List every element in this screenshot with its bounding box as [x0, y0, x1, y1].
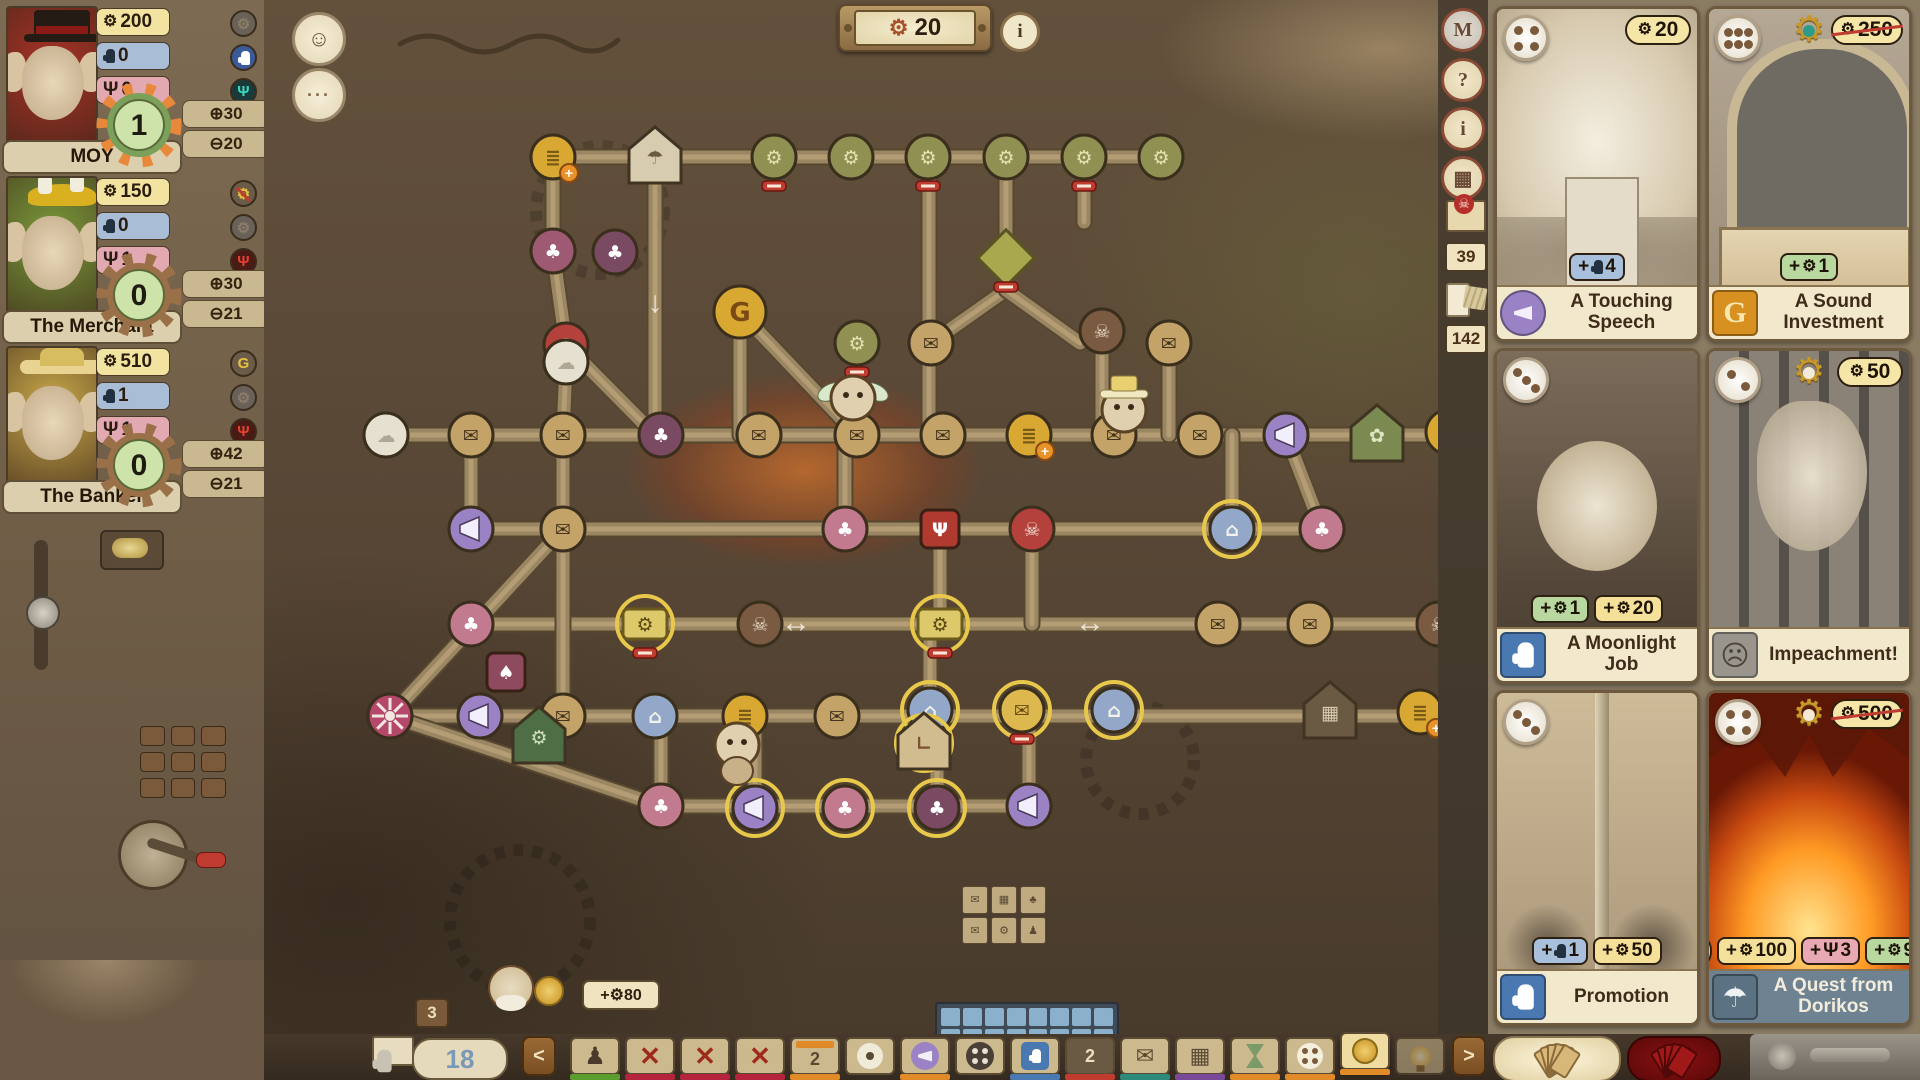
- card-category-icon: [1500, 974, 1546, 1020]
- svg-text:⌂: ⌂: [1107, 700, 1121, 722]
- node-megaphone[interactable]: [449, 507, 493, 551]
- info-button[interactable]: i: [1000, 12, 1040, 52]
- card-a-sound-investment[interactable]: ⚙⚙250+⚙1GA Sound Investment: [1706, 6, 1912, 342]
- machine-button-grid: [140, 726, 226, 796]
- machine-dial[interactable]: [118, 820, 188, 890]
- machine-button[interactable]: [201, 778, 226, 798]
- goblin-face-icon: ☹: [1720, 639, 1749, 672]
- gear-badge-icon: ⚙: [1793, 695, 1825, 731]
- chat-dots-icon: ···: [307, 85, 331, 106]
- machine-slot: [100, 530, 164, 570]
- svg-text:☠: ☠: [1430, 614, 1438, 636]
- card-a-moonlight-job[interactable]: +⚙1+⚙20A Moonlight Job: [1494, 348, 1700, 684]
- bulb-icon: [1410, 1046, 1431, 1067]
- node-lantern[interactable]: ⌂: [633, 694, 677, 738]
- track-tile-envelope[interactable]: ✉: [1120, 1037, 1170, 1075]
- svg-text:⌂: ⌂: [648, 706, 662, 728]
- card-title-bar: GA Sound Investment: [1709, 285, 1909, 339]
- svg-text:⚙: ⚙: [842, 147, 859, 169]
- machine-button[interactable]: [171, 752, 196, 772]
- node-gmoney[interactable]: ⚙: [984, 135, 1028, 179]
- card-rewards: +⚙1+⚙20: [1497, 595, 1697, 623]
- vp-loss: ⊖21: [182, 470, 270, 498]
- node-gmoney[interactable]: ⚙: [1139, 135, 1183, 179]
- node-gmoney[interactable]: ⚙: [829, 135, 873, 179]
- gear-coin-icon: ⚙: [1553, 601, 1567, 617]
- svg-text:✉: ✉: [935, 425, 951, 447]
- node-envelope[interactable]: ✉: [1178, 413, 1222, 457]
- reward-coin: +⚙20: [1594, 595, 1663, 623]
- player-portrait: [6, 176, 98, 320]
- help-button[interactable]: ?: [1441, 58, 1485, 102]
- initiative-pips-button[interactable]: [1503, 357, 1549, 403]
- score-gear: 1: [96, 82, 182, 173]
- game-screen: ⚙2000Ψ0⚙Ψ⊕30⊖20MOY1 ⚙1500Ψ1⚙⚙Ψ⊕30⊖21The …: [0, 0, 1920, 1080]
- node-coin[interactable]: ≣+: [1398, 690, 1438, 737]
- machine-button[interactable]: [140, 778, 165, 798]
- coin-icon: [1352, 1038, 1378, 1064]
- node-skull-red[interactable]: ☠: [1010, 507, 1054, 551]
- node-coin[interactable]: ≣+: [1007, 413, 1054, 460]
- node-envelope[interactable]: ✉: [541, 507, 585, 551]
- player-portrait: [6, 346, 98, 490]
- svg-text:☠: ☠: [1093, 321, 1110, 343]
- svg-text:✉: ✉: [1210, 614, 1226, 636]
- svg-text:✉: ✉: [849, 425, 865, 447]
- svg-text:Ψ: Ψ: [932, 519, 948, 541]
- deck-count: 142: [1445, 324, 1487, 354]
- node-megaphone[interactable]: [458, 694, 502, 738]
- vp-loss: ⊖20: [182, 130, 270, 158]
- player-panel-the-banker: ⚙5101Ψ1G⚙Ψ⊕42⊖21The Banker0: [0, 344, 264, 512]
- track-tile-coin[interactable]: [1340, 1032, 1390, 1070]
- machine-button[interactable]: [140, 726, 165, 746]
- card-name: A Sound Investment: [1764, 292, 1909, 334]
- parachute-icon: ☂: [1722, 981, 1747, 1014]
- player-portrait: [6, 6, 98, 150]
- megaphone-icon: [911, 1042, 939, 1070]
- node-envelope[interactable]: ✉: [541, 413, 585, 457]
- mail-skull-icon[interactable]: ☠: [1446, 200, 1486, 232]
- hand-icon: [103, 49, 115, 63]
- x-icon: ✕: [639, 1041, 661, 1072]
- gear-badge-icon: ⚙: [1793, 11, 1825, 47]
- reward-gear: +⚙9: [1865, 937, 1912, 965]
- grid-icon: ▦: [1190, 1043, 1211, 1069]
- card-category-icon: [1500, 632, 1546, 678]
- track-tile-hourglass[interactable]: [1230, 1037, 1280, 1075]
- hand-icon: [1591, 260, 1603, 274]
- coins-stat: ⚙200: [96, 8, 170, 36]
- gear-token: G: [230, 350, 257, 377]
- card-cost: ⚙20: [1625, 15, 1691, 45]
- node-gmoney[interactable]: ⚙: [835, 321, 879, 377]
- card-rewards: +⚙1: [1709, 253, 1909, 281]
- card-name: Impeachment!: [1764, 645, 1909, 666]
- svg-text:♣: ♣: [462, 614, 479, 636]
- pips-icon: [1297, 1043, 1323, 1069]
- skull-icon: ☠: [1454, 194, 1474, 214]
- svg-text:▦: ▦: [1321, 702, 1339, 724]
- round-counter-value: 20: [915, 14, 942, 42]
- node-spade-tile[interactable]: ♠: [487, 653, 525, 691]
- gear-token: ⚙: [230, 10, 257, 37]
- money-g-icon: G: [1723, 296, 1746, 330]
- machine-pipe: [0, 960, 264, 1080]
- node-club-pink[interactable]: ♣: [817, 780, 873, 836]
- card-title-bar: A Moonlight Job: [1497, 627, 1697, 681]
- pips-icon: [966, 1042, 994, 1070]
- node-club-pink[interactable]: ♣: [639, 784, 683, 828]
- node-envelope-gold[interactable]: ✉: [994, 682, 1050, 744]
- card-rewards: +⚙100+Ψ3+⚙9: [1709, 937, 1909, 965]
- node-money[interactable]: ⚙: [617, 596, 673, 658]
- players-sidebar: ⚙2000Ψ0⚙Ψ⊕30⊖20MOY1 ⚙1500Ψ1⚙⚙Ψ⊕30⊖21The …: [0, 0, 264, 1080]
- envelope-icon: ✉: [1136, 1043, 1154, 1069]
- track-tile-grid[interactable]: ▦: [1175, 1037, 1225, 1075]
- hand-icon: [1021, 1042, 1049, 1070]
- gear-coin-icon: ⚙: [1616, 601, 1630, 617]
- bonus-counter: +⚙80: [582, 980, 660, 1010]
- svg-text:⚙: ⚙: [931, 614, 948, 636]
- machine-lever[interactable]: [34, 540, 48, 670]
- info-log-button[interactable]: i: [1441, 107, 1485, 151]
- hand-icon: [1512, 642, 1534, 667]
- vp-loss: ⊖21: [182, 300, 270, 328]
- direction-arrow-icon: ↓: [648, 286, 663, 319]
- track-tile-circle-dot[interactable]: [845, 1037, 895, 1075]
- reward-bulb: [1706, 937, 1712, 965]
- svg-text:∟: ∟: [916, 733, 932, 755]
- card-category-icon: [1500, 290, 1546, 336]
- card-rewards: +1+⚙50: [1497, 937, 1697, 965]
- node-club-pink[interactable]: ♣: [1300, 507, 1344, 551]
- hand-count: 18: [412, 1038, 508, 1080]
- svg-text:⚙: ⚙: [1152, 147, 1169, 169]
- card-a-touching-speech[interactable]: ⚙20+4A Touching Speech: [1494, 6, 1700, 342]
- track-tile-x[interactable]: ✕: [735, 1037, 785, 1075]
- svg-text:✉: ✉: [555, 425, 571, 447]
- node-club-pink[interactable]: ♣: [449, 602, 493, 646]
- node-envelope[interactable]: ✉: [815, 694, 859, 738]
- hand-icon: [1554, 944, 1566, 958]
- machine-button[interactable]: [140, 752, 165, 772]
- card-category-icon: ☹: [1712, 632, 1758, 678]
- bottom-action-bar: 18 < ♟✕✕✕22✉▦ >: [264, 1034, 1920, 1080]
- svg-text:⌂: ⌂: [1225, 519, 1239, 541]
- svg-text:✉: ✉: [1014, 700, 1030, 722]
- reward-hand: +1: [1532, 937, 1588, 965]
- board-coin-token: [534, 976, 564, 1006]
- svg-text:☠: ☠: [1023, 519, 1040, 541]
- node-white-puff[interactable]: ☁: [544, 340, 588, 384]
- score-gear: 0: [96, 252, 182, 343]
- machine-lever-decor: [1750, 1034, 1920, 1080]
- machine-knob-yellow[interactable]: [112, 538, 148, 558]
- hourglass-icon: [1246, 1044, 1264, 1068]
- svg-text:✉: ✉: [1161, 333, 1177, 355]
- card-cost: ⚙250: [1831, 15, 1903, 45]
- track-tile-hand[interactable]: [1010, 1037, 1060, 1075]
- svg-text:♣: ♣: [652, 425, 669, 447]
- card-cost: ⚙50: [1837, 357, 1903, 387]
- node-house-grid[interactable]: ▦: [1304, 682, 1356, 738]
- round-counter-plaque: ⚙ 20: [838, 4, 992, 52]
- svg-text:☂: ☂: [646, 147, 663, 169]
- svg-text:✉: ✉: [751, 425, 767, 447]
- svg-text:☁: ☁: [377, 425, 396, 447]
- svg-text:+: +: [565, 165, 573, 181]
- back-button[interactable]: <: [522, 1036, 556, 1076]
- game-board: ≣+☂⚙⚙⚙⚙⚙⚙♣☠♣G⚙✉☠✉☁☁✉✉♣✉✉✉≣+✉✉✿≣+✉♣Ψ☠⌂♣♣♠…: [264, 0, 1438, 1080]
- svg-text:G: G: [729, 298, 750, 328]
- card-impeachment[interactable]: ⚙⚙50☹Impeachment!: [1706, 348, 1912, 684]
- hand-icon: [238, 51, 250, 65]
- svg-text:♣: ♣: [836, 798, 853, 820]
- initiative-pips-button[interactable]: [1503, 699, 1549, 745]
- gear-coin-icon: ⚙: [1802, 259, 1816, 275]
- card-name: A Moonlight Job: [1552, 634, 1697, 676]
- card-name: A Quest from Dorikos: [1764, 976, 1909, 1018]
- svg-text:⚙: ⚙: [997, 147, 1014, 169]
- node-lantern[interactable]: ⌂: [1204, 501, 1260, 557]
- node-club-dark[interactable]: ♣: [909, 780, 965, 836]
- x-icon: ✕: [694, 1041, 716, 1072]
- node-gmoney[interactable]: ⚙: [906, 135, 950, 191]
- hand-icon: [103, 389, 115, 403]
- svg-text:⚙: ⚙: [1075, 147, 1092, 169]
- card-rewards: +4: [1497, 253, 1697, 281]
- figure-icon: ♟: [584, 1042, 606, 1071]
- card-title-bar: A Touching Speech: [1497, 285, 1697, 339]
- gear-coin-icon: ⚙: [1887, 943, 1901, 959]
- gear-coin-icon: ⚙: [1615, 943, 1629, 959]
- calendar-strip: [796, 1041, 834, 1048]
- node-wheel[interactable]: [368, 694, 412, 738]
- track-tile-cal[interactable]: 2: [790, 1037, 840, 1075]
- svg-text:⚙: ⚙: [919, 147, 936, 169]
- chat-button[interactable]: ···: [292, 68, 346, 122]
- track-tile-num[interactable]: 2: [1065, 1037, 1115, 1075]
- node-skull-brown[interactable]: ☠: [738, 602, 782, 646]
- svg-text:♣: ♣: [544, 241, 561, 263]
- svg-text:♣: ♣: [928, 798, 945, 820]
- reward-hand: +4: [1569, 253, 1625, 281]
- menu-button[interactable]: M: [1441, 8, 1485, 52]
- svg-text:✉: ✉: [463, 425, 479, 447]
- node-envelope[interactable]: ✉: [909, 321, 953, 365]
- coins-stat: ⚙150: [96, 178, 170, 206]
- card-title-bar: ☹Impeachment!: [1709, 627, 1909, 681]
- svg-text:✉: ✉: [1192, 425, 1208, 447]
- machine-dial-arm: [146, 837, 206, 865]
- svg-text:♣: ♣: [606, 242, 623, 264]
- hand-icon: [103, 219, 115, 233]
- svg-text:⚙: ⚙: [530, 727, 547, 749]
- node-white-puff[interactable]: ☁: [364, 413, 408, 457]
- machine-lever-knob[interactable]: [26, 596, 60, 630]
- machine-button[interactable]: [171, 778, 196, 798]
- card-name: Promotion: [1552, 987, 1697, 1008]
- tool-column: M ? i ▦ ☠ 39 142: [1438, 0, 1488, 1035]
- node-megaphone[interactable]: [1007, 784, 1051, 828]
- forward-button[interactable]: >: [1452, 1036, 1486, 1076]
- hand-token: [230, 44, 257, 71]
- direction-arrow-icon: ↔: [781, 606, 811, 639]
- svg-text:✉: ✉: [555, 519, 571, 541]
- machine-red-light: [196, 852, 226, 868]
- opponent-hand-button[interactable]: [1627, 1036, 1721, 1080]
- hand-token: ⚙: [230, 214, 257, 241]
- node-skull-brown[interactable]: ☠: [1417, 602, 1438, 646]
- svg-text:♣: ♣: [652, 796, 669, 818]
- node-club-pink[interactable]: ♣: [823, 507, 867, 551]
- node-club-maroon[interactable]: ♣: [531, 229, 575, 273]
- vp-gain: ⊕42: [182, 440, 270, 468]
- hands-stat: 0: [96, 42, 170, 70]
- coins-stat: ⚙510: [96, 348, 170, 376]
- bulb-icon: [1706, 945, 1710, 958]
- disc-icon: [857, 1043, 883, 1069]
- node-house-boot[interactable]: ∟: [896, 713, 952, 771]
- machine-button[interactable]: [201, 752, 226, 772]
- card-name: A Touching Speech: [1552, 292, 1697, 334]
- cards-panel: ⚙20+4A Touching Speech ⚙⚙250+⚙1GA Sound …: [1488, 0, 1920, 1035]
- node-house-leaf[interactable]: ✿: [1351, 405, 1403, 461]
- node-gear-g[interactable]: G: [714, 286, 766, 338]
- node-envelope[interactable]: ✉: [449, 413, 493, 457]
- node-club-dark[interactable]: ♣: [639, 413, 683, 457]
- track-tile-x[interactable]: ✕: [625, 1037, 675, 1075]
- goblin-face-icon: ☺: [308, 26, 330, 52]
- psi-icon: Ψ: [1823, 940, 1838, 962]
- my-hand-button[interactable]: [1493, 1036, 1621, 1080]
- deck-icon[interactable]: [1446, 283, 1470, 317]
- svg-text:☁: ☁: [557, 352, 576, 374]
- node-lantern[interactable]: ⌂: [1086, 682, 1142, 738]
- board-goblin-token: [488, 965, 534, 1011]
- initiative-pips-button[interactable]: [1503, 15, 1549, 61]
- svg-text:0: 0: [131, 279, 148, 312]
- reward-psi: +Ψ3: [1801, 937, 1860, 965]
- svg-text:≣: ≣: [1021, 425, 1037, 447]
- svg-text:≣: ≣: [545, 147, 561, 169]
- node-gmoney[interactable]: ⚙: [1062, 135, 1106, 191]
- svg-text:✉: ✉: [923, 333, 939, 355]
- reward-coin: +⚙100: [1717, 937, 1796, 965]
- svg-text:♠: ♠: [497, 662, 514, 684]
- initiative-pips-button[interactable]: [1715, 15, 1761, 61]
- player-panel-moy: ⚙2000Ψ0⚙Ψ⊕30⊖20MOY1: [0, 4, 264, 172]
- initiative-pips-button[interactable]: [1715, 699, 1761, 745]
- hand-icon: [1512, 984, 1534, 1009]
- initiative-pips-button[interactable]: [1715, 357, 1761, 403]
- node-envelope[interactable]: ✉: [1196, 602, 1240, 646]
- node-skull-brown[interactable]: ☠: [1080, 309, 1124, 353]
- card-cost: ⚙500: [1831, 699, 1903, 729]
- svg-text:1: 1: [131, 109, 148, 142]
- card-title-bar: Promotion: [1497, 969, 1697, 1023]
- track-tile-fourdots[interactable]: [1285, 1037, 1335, 1075]
- hand-envelope-icon: [368, 1036, 412, 1078]
- hands-stat: 1: [96, 382, 170, 410]
- node-envelope[interactable]: ✉: [737, 413, 781, 457]
- score-gear: 0: [96, 422, 182, 513]
- reward-gear: +⚙1: [1531, 595, 1589, 623]
- node-diamond[interactable]: [978, 230, 1035, 292]
- svg-text:✉: ✉: [829, 706, 845, 728]
- node-coin[interactable]: ≣+: [1426, 410, 1438, 457]
- card-category-icon: G: [1712, 290, 1758, 336]
- mail-count: 39: [1445, 242, 1487, 272]
- track-tile-figure[interactable]: ♟: [570, 1037, 620, 1075]
- gear-token: ⚙: [230, 180, 257, 207]
- hand-token: ⚙: [230, 384, 257, 411]
- player-panel-the-merchant: ⚙1500Ψ1⚙⚙Ψ⊕30⊖21The Merchant0: [0, 174, 264, 342]
- node-gmoney[interactable]: ⚙: [752, 135, 796, 191]
- vp-gain: ⊕30: [182, 270, 270, 298]
- svg-text:⚙: ⚙: [848, 333, 865, 355]
- stack-counter: 3: [415, 998, 449, 1028]
- svg-text:≣: ≣: [1412, 702, 1428, 724]
- megaphone-icon: [1514, 306, 1532, 320]
- node-coin[interactable]: ≣+: [531, 135, 578, 182]
- svg-text:♣: ♣: [1313, 519, 1330, 541]
- node-club-dark[interactable]: ♣: [593, 230, 637, 274]
- hands-stat: 0: [96, 212, 170, 240]
- node-megaphone[interactable]: [1264, 413, 1308, 457]
- machine-button[interactable]: [201, 726, 226, 746]
- svg-text:⚙: ⚙: [636, 614, 653, 636]
- gear-icon: ⚙: [889, 17, 909, 39]
- reward-coin: +⚙50: [1593, 937, 1662, 965]
- card-a-quest-from-dorikos[interactable]: ⚙⚙500+⚙100+Ψ3+⚙9☂A Quest from Dorikos: [1706, 690, 1912, 1026]
- svg-text:✉: ✉: [1302, 614, 1318, 636]
- vp-gain: ⊕30: [182, 100, 270, 128]
- gear-coin-icon: ⚙: [1739, 943, 1753, 959]
- node-envelope[interactable]: ✉: [1288, 602, 1332, 646]
- x-icon: ✕: [749, 1041, 771, 1072]
- reward-gear: +⚙1: [1780, 253, 1838, 281]
- node-envelope[interactable]: ✉: [921, 413, 965, 457]
- svg-text:+: +: [1041, 443, 1049, 459]
- track-tile-megaphone[interactable]: [900, 1037, 950, 1075]
- svg-text:0: 0: [131, 449, 148, 482]
- gear-badge-icon: ⚙: [1793, 353, 1825, 389]
- svg-text:⚙: ⚙: [765, 147, 782, 169]
- svg-text:☠: ☠: [751, 614, 768, 636]
- action-mini-grid[interactable]: ✉▦♣✉⚙♟: [962, 886, 1046, 944]
- svg-text:♣: ♣: [836, 519, 853, 541]
- node-megaphone[interactable]: [727, 780, 783, 836]
- card-promotion[interactable]: +1+⚙50Promotion: [1494, 690, 1700, 1026]
- direction-arrow-icon: ↔: [1075, 606, 1105, 639]
- character-small-goblin: [715, 723, 759, 785]
- avatar-button[interactable]: ☺: [292, 12, 346, 66]
- card-title-bar: ☂A Quest from Dorikos: [1709, 969, 1909, 1023]
- node-envelope[interactable]: ✉: [1147, 321, 1191, 365]
- track-tile-bulb[interactable]: [1395, 1037, 1445, 1075]
- card-category-icon: ☂: [1712, 974, 1758, 1020]
- node-psi-tile[interactable]: Ψ: [921, 510, 959, 548]
- node-house-parachute[interactable]: ☂: [629, 127, 681, 183]
- svg-text:✿: ✿: [1369, 425, 1385, 447]
- machine-button[interactable]: [171, 726, 196, 746]
- track-tile-dots[interactable]: [955, 1037, 1005, 1075]
- track-tile-x[interactable]: ✕: [680, 1037, 730, 1075]
